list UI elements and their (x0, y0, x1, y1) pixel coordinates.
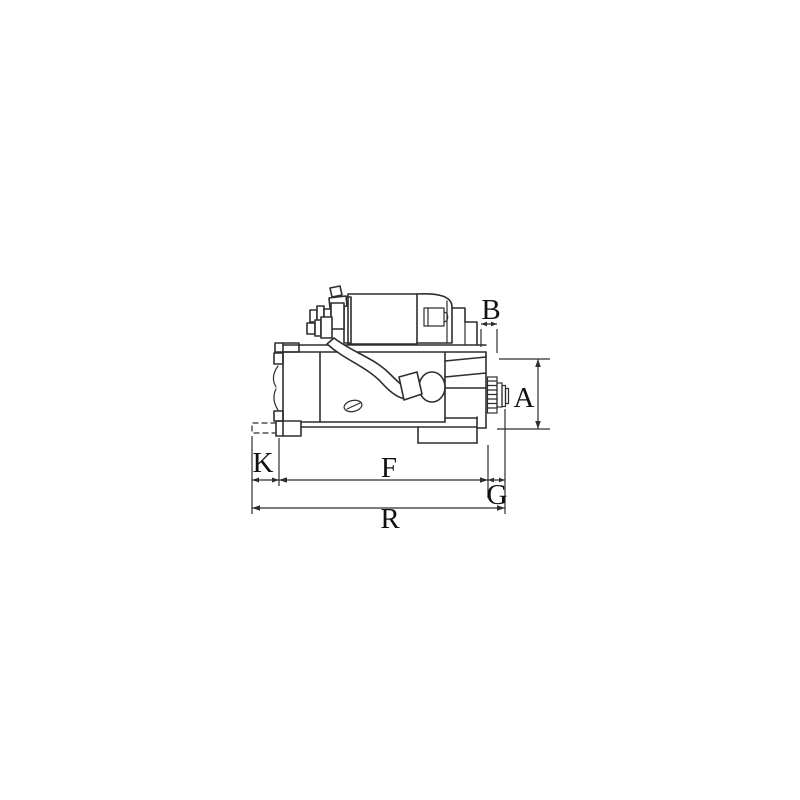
dimensions: B A K F G (252, 294, 550, 535)
terminal-nut-top (330, 286, 342, 297)
dimension-b: B (481, 294, 501, 353)
drawing-canvas: B A K F G (0, 0, 800, 800)
motor-drawing (252, 286, 509, 443)
solenoid-terminal-block (424, 308, 444, 326)
cable-boot (419, 372, 445, 402)
dimension-label-a: A (514, 382, 535, 414)
dimension-extension-lines (252, 409, 505, 514)
dimension-label-k: K (253, 447, 274, 479)
rear-shaft-dashed-outline (252, 423, 276, 433)
terminal-stud-lower (307, 323, 315, 334)
battery-cable (327, 338, 445, 402)
rear-end-cap (252, 343, 301, 436)
terminal-studs (307, 286, 347, 338)
solenoid (344, 294, 477, 345)
dimension-label-f: F (381, 452, 397, 484)
dimension-r: R (252, 503, 505, 535)
pinion-shaft (488, 377, 509, 413)
inspection-screw (343, 399, 363, 414)
cable-clamp (399, 372, 422, 400)
dimension-k: K (252, 447, 279, 483)
starter-motor-diagram: B A K F G (0, 0, 800, 800)
dimension-label-r: R (380, 503, 400, 535)
dimension-f: F (279, 452, 488, 484)
dimension-label-b: B (481, 294, 500, 326)
